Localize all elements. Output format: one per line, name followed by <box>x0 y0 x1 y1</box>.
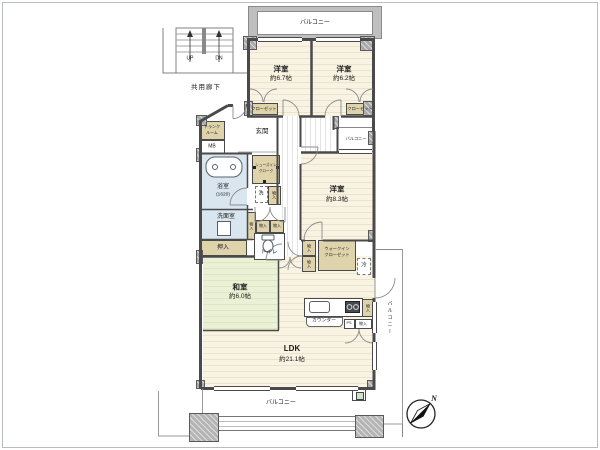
right-balcony <box>376 249 403 437</box>
japanese-room-size: 約6.0帖 <box>229 294 251 301</box>
washing-machine <box>217 221 231 236</box>
pipe-space-label: PS <box>346 322 351 326</box>
storage-d-label: 物入 <box>307 260 311 268</box>
window <box>372 342 377 370</box>
washroom-label: 洗面室 <box>217 214 235 220</box>
ldk-size: 約21.1帖 <box>279 357 305 364</box>
storage-f-label: 物入 <box>366 304 370 312</box>
sic-label-2: クローク <box>259 170 273 174</box>
wic-label-1: ウォークイン <box>324 247 349 251</box>
room-west3-name: 洋室 <box>330 185 345 193</box>
storage-a-label: 物入 <box>259 224 267 228</box>
stairs-up-label: UP <box>187 57 194 62</box>
column <box>368 230 375 242</box>
bath-label: 浴室 <box>217 184 229 190</box>
ldk-name: LDK <box>284 345 300 353</box>
storage-c-label: 物入 <box>307 244 311 252</box>
column <box>243 36 257 50</box>
water-heater-icon <box>356 392 364 400</box>
balcony-column-left <box>189 413 219 442</box>
room-west1-size: 約6.7帖 <box>270 76 292 83</box>
column <box>196 250 203 264</box>
japanese-room-name: 和室 <box>233 283 248 291</box>
meter-box-label: MB <box>208 145 216 150</box>
stairs-down-label: DN <box>215 57 222 62</box>
column <box>196 148 202 162</box>
window <box>339 149 372 154</box>
sic-pipe-mark <box>263 180 266 183</box>
kitchen-sink <box>309 301 330 313</box>
washer-label: 洗 <box>258 192 263 197</box>
bathroom-floor <box>201 153 247 210</box>
storage-linen-label: 物入 <box>249 222 253 230</box>
trunk-room-label-2: ルーム <box>206 131 218 135</box>
window <box>214 386 270 391</box>
room-west1-name: 洋室 <box>274 65 289 73</box>
room-west3-size: 約8.3帖 <box>326 197 348 204</box>
fridge-label: 冷 <box>361 263 367 269</box>
hallway-upper-floor <box>301 116 334 153</box>
bath-size-label: (1620) <box>216 194 230 199</box>
balcony-column-right <box>355 415 384 438</box>
storage-e-label: 物入 <box>359 322 367 326</box>
genkan-label: 玄関 <box>256 129 269 136</box>
storage-b-label: 物入 <box>273 224 281 228</box>
window <box>372 302 377 333</box>
column <box>367 380 375 389</box>
room-west2-name: 洋室 <box>337 65 352 73</box>
toilet-label: トイレ <box>261 250 278 256</box>
top-balcony-label: バルコニー <box>300 20 330 26</box>
counter-label: カウンター <box>312 320 336 325</box>
window <box>316 37 360 42</box>
wic-label-2: クローゼット <box>324 253 349 257</box>
right-balcony-label: バルコニー <box>387 301 392 336</box>
window <box>258 37 302 42</box>
closet-west2-label: クローゼット <box>347 107 372 111</box>
mini-balcony-label: バルコニー <box>346 137 367 141</box>
window <box>296 386 358 391</box>
closet-west1-label: クローゼット <box>251 107 276 111</box>
toilet-room <box>254 233 285 260</box>
column <box>360 36 375 51</box>
column <box>368 131 375 145</box>
kitchen-stove <box>345 301 360 313</box>
trunk-room-label-1: トランク <box>204 125 220 129</box>
storage-hall-label: 物入 <box>272 191 276 199</box>
column <box>333 116 339 129</box>
bottom-balcony-label: バルコニー <box>266 400 296 406</box>
floorplan: 共用廊下 UP DN バルコニー 洋室 約6.7帖 洋室 約6.2帖 クローゼッ… <box>0 0 600 450</box>
balcony-rail <box>218 416 357 431</box>
common-corridor-label: 共用廊下 <box>191 85 221 92</box>
north-label: N <box>431 395 437 403</box>
sic-label-1: シューズイン <box>255 164 276 168</box>
oshiire-label: 押入 <box>217 245 229 251</box>
room-west2-size: 約6.2帖 <box>333 76 355 83</box>
column <box>196 380 205 389</box>
